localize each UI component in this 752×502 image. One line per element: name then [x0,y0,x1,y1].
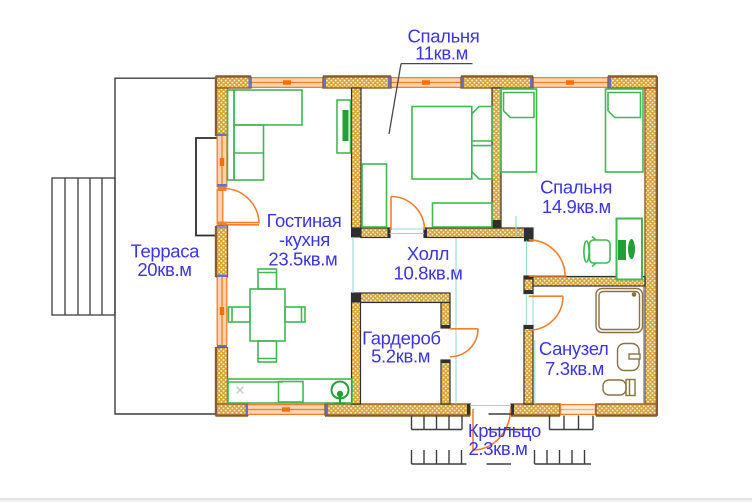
svg-text:Спальня: Спальня [540,177,612,198]
svg-text:Холл: Холл [407,243,449,264]
svg-text:Терраса: Терраса [131,240,201,261]
svg-text:-кухня: -кухня [279,229,330,250]
svg-text:Гостиная: Гостиная [267,210,342,231]
svg-text:14.9кв.м: 14.9кв.м [542,196,611,217]
svg-text:11кв.м: 11кв.м [415,43,468,64]
svg-text:Санузел: Санузел [539,338,609,359]
svg-text:7.3кв.м: 7.3кв.м [545,358,604,379]
svg-text:20кв.м: 20кв.м [137,259,191,280]
svg-text:5.2кв.м: 5.2кв.м [371,345,430,366]
svg-text:2.3кв.м: 2.3кв.м [468,438,527,459]
svg-text:23.5кв.м: 23.5кв.м [268,249,337,270]
svg-text:10.8кв.м: 10.8кв.м [394,262,463,283]
